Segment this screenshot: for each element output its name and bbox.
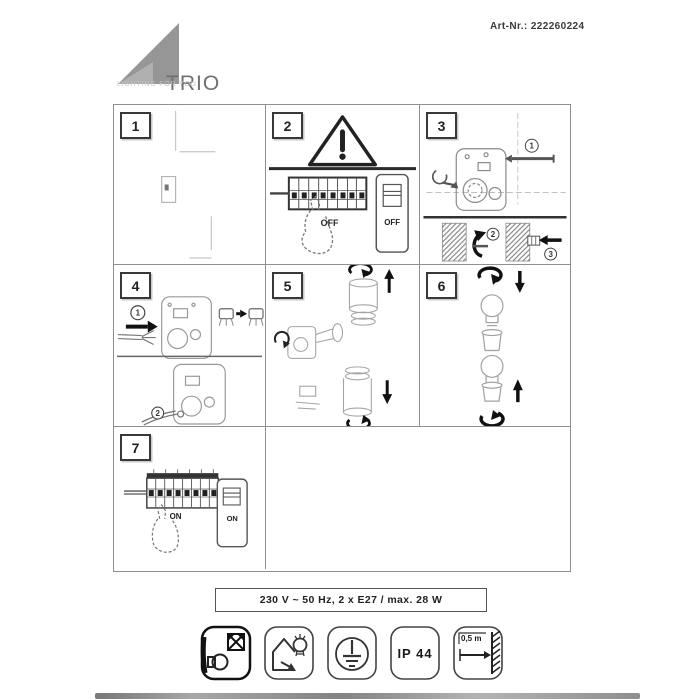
wall-anchor-illustration: 3: [506, 223, 562, 261]
step-badge-4: 4: [120, 272, 151, 299]
rotate-arrow-bottom-icon: [348, 415, 371, 426]
switch-off-label: OFF: [384, 218, 400, 227]
distance-label: 0,5 m: [461, 634, 481, 643]
min-distance-icon: 0,5 m: [452, 625, 504, 681]
step-badge-1: 1: [120, 112, 151, 139]
connected-plate-illustration: [174, 364, 226, 424]
step-badge-6: 6: [426, 272, 457, 299]
step-badge-5: 5: [272, 272, 303, 299]
screw-icon: [505, 155, 554, 163]
panel-6: 6: [420, 265, 570, 427]
protective-earth-icon: [326, 625, 378, 681]
step-badge-7: 7: [120, 434, 151, 461]
outdoor-use-icon: [263, 625, 315, 681]
down-arrow-icon: [515, 271, 525, 293]
glass-shade-top: [349, 279, 377, 325]
step-number-1: 1: [136, 309, 141, 318]
empty-panel: [266, 427, 570, 569]
rotate-arrow-icon: [479, 268, 501, 285]
panel-2: 2: [266, 105, 420, 265]
step-number-2: 2: [155, 409, 160, 418]
switch-on-label: ON: [227, 514, 238, 523]
breaker-on-label: ON: [170, 512, 182, 521]
panel-7: 7: [114, 427, 266, 569]
step-number-1: 1: [530, 142, 535, 151]
panel-1: 1: [114, 105, 266, 265]
fixture-sketch: [288, 324, 343, 409]
rotate-arrow-icon: [350, 265, 372, 278]
socket-icon-top: [482, 330, 502, 351]
bulb-icon-bottom: [481, 355, 503, 401]
mounting-plate-illustration: [456, 149, 506, 211]
scan-artifact-bar: [95, 693, 640, 699]
article-number: Art-Nr.: 222260224: [490, 21, 584, 32]
up-arrow-icon: [513, 379, 523, 402]
trio-logo: TRIO LIGHTING FOR YOU: [113, 20, 263, 94]
ip-rating-label: IP 44: [397, 646, 432, 661]
step-badge-3: 3: [426, 112, 457, 139]
light-switch-illustration: [376, 175, 408, 252]
rotate-arrow-bottom-icon: [481, 410, 503, 426]
mounting-plate-illustration: [162, 297, 212, 359]
step-badge-2: 2: [272, 112, 303, 139]
bulb-icon-top: [481, 295, 503, 326]
wire-connector-icons: [219, 309, 263, 326]
stripped-cable-icon: [118, 331, 156, 345]
small-screw-arrow-icon: [433, 171, 459, 189]
spec-bar: 230 V ~ 50 Hz, 2 x E27 / max. 28 W: [215, 588, 487, 612]
step-number-2: 2: [491, 230, 496, 239]
spec-text: 230 V ~ 50 Hz, 2 x E27 / max. 28 W: [260, 594, 443, 606]
warning-icon: [310, 117, 376, 165]
panel-3: 3: [420, 105, 570, 265]
fixture-switch-dot: [165, 185, 169, 191]
ip44-badge: IP 44: [389, 625, 441, 681]
panel-5: 5: [266, 265, 420, 427]
step-number-3: 3: [548, 250, 553, 259]
symbol-row: IP 44 0,5 m: [200, 625, 504, 683]
up-arrow-icon: [384, 269, 394, 293]
breaker-panel-illustration: [270, 178, 366, 210]
instruction-grid: 1 2: [113, 104, 571, 572]
instruction-sheet: TRIO LIGHTING FOR YOU Art-Nr.: 222260224…: [0, 0, 700, 700]
breaker-panel-illustration: [124, 469, 218, 508]
no-flammable-surface-icon: [200, 625, 252, 681]
panel-4: 4 1: [114, 265, 266, 427]
drill-hole-illustration: 2: [442, 223, 499, 261]
down-arrow-icon: [382, 380, 392, 404]
glass-shade-bottom: [343, 367, 371, 416]
brand-tagline: LIGHTING FOR YOU: [117, 81, 197, 88]
